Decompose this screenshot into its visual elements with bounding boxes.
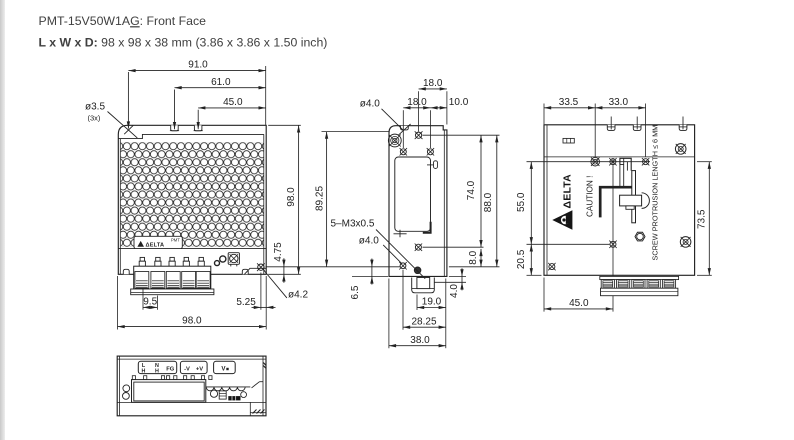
svg-text:74.0: 74.0 bbox=[466, 180, 477, 200]
svg-text:L x W x D: 98 x 98 x 38 mm (3.: L x W x D: 98 x 98 x 38 mm (3.86 x 3.86 … bbox=[39, 36, 328, 50]
svg-text:73.5: 73.5 bbox=[697, 209, 708, 229]
svg-text:45.0: 45.0 bbox=[569, 298, 589, 309]
svg-text:SCREW PROTRUSION LENGTH ≤ 6 MM: SCREW PROTRUSION LENGTH ≤ 6 MM bbox=[650, 125, 659, 261]
svg-text:61.0: 61.0 bbox=[211, 77, 231, 88]
svg-text:PMT: PMT bbox=[171, 238, 180, 243]
svg-text:28.25: 28.25 bbox=[411, 316, 436, 327]
svg-text:H: H bbox=[155, 368, 159, 374]
svg-text:88.0: 88.0 bbox=[483, 192, 494, 212]
svg-text:H: H bbox=[142, 368, 146, 374]
svg-text:8.0: 8.0 bbox=[468, 250, 479, 264]
svg-text:(3x): (3x) bbox=[88, 114, 101, 123]
svg-text:FG: FG bbox=[166, 367, 175, 373]
svg-text:18.0: 18.0 bbox=[407, 97, 427, 108]
svg-text:ø4.0: ø4.0 bbox=[359, 236, 379, 247]
svg-text:9.5: 9.5 bbox=[143, 297, 157, 308]
svg-text:18.0: 18.0 bbox=[423, 78, 443, 89]
svg-text:-V: -V bbox=[184, 367, 190, 373]
svg-text:ø4.0: ø4.0 bbox=[360, 98, 380, 109]
svg-text:ΔELTA: ΔELTA bbox=[562, 174, 574, 209]
svg-text:20.5: 20.5 bbox=[516, 249, 527, 269]
svg-text:33.0: 33.0 bbox=[609, 97, 629, 108]
svg-text:4.0: 4.0 bbox=[449, 284, 460, 298]
svg-text:91.0: 91.0 bbox=[188, 59, 208, 70]
svg-text:98.0: 98.0 bbox=[182, 316, 202, 327]
svg-text:ø4.2: ø4.2 bbox=[288, 289, 308, 300]
svg-text:CAUTION !: CAUTION ! bbox=[586, 176, 595, 217]
svg-text:98.0: 98.0 bbox=[286, 187, 297, 207]
svg-text:5–M3x0.5: 5–M3x0.5 bbox=[331, 218, 375, 229]
svg-text:55.0: 55.0 bbox=[516, 192, 527, 212]
svg-text:+V: +V bbox=[196, 367, 203, 373]
svg-text:19.0: 19.0 bbox=[422, 297, 442, 308]
svg-text:PMT-15V50W1AG: Front Face: PMT-15V50W1AG: Front Face bbox=[39, 14, 207, 28]
svg-text:6.5: 6.5 bbox=[350, 285, 361, 299]
svg-text:89.25: 89.25 bbox=[314, 186, 325, 211]
svg-text:5.25: 5.25 bbox=[236, 297, 256, 308]
svg-text:ø3.5: ø3.5 bbox=[85, 102, 105, 113]
svg-text:ΔELTA: ΔELTA bbox=[146, 243, 165, 249]
svg-text:10.0: 10.0 bbox=[449, 97, 469, 108]
svg-text:33.5: 33.5 bbox=[559, 97, 579, 108]
svg-text:45.0: 45.0 bbox=[223, 97, 243, 108]
svg-text:38.0: 38.0 bbox=[410, 335, 430, 346]
svg-text:4.75: 4.75 bbox=[273, 242, 284, 262]
